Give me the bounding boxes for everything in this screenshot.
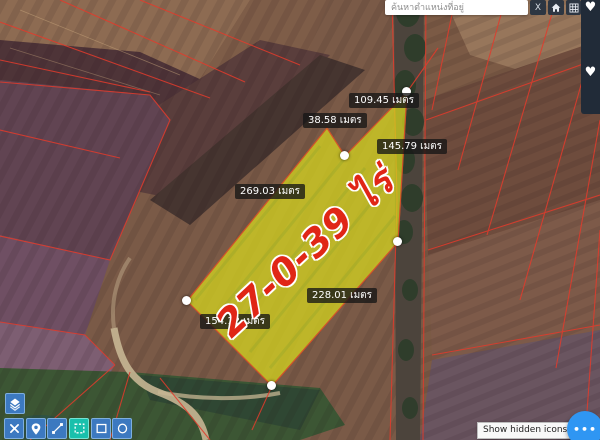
edge-length-label: 269.03 เมตร [235,184,305,199]
scissors-icon [8,422,21,435]
measure-distance-icon [51,422,64,435]
location-pin-icon [30,422,42,436]
layers-button[interactable] [5,393,25,414]
edge-length-label: 109.45 เมตร [349,93,419,108]
clear-search-button[interactable]: X [530,0,546,15]
vertex-marker[interactable] [393,237,402,246]
measure-distance-button[interactable] [47,418,67,439]
draw-polygon-icon [73,422,86,435]
show-hidden-icons-tooltip: Show hidden icons [477,422,573,439]
favorites-panel: ♥ ♥ [581,0,600,114]
map-application: 109.45 เมตร 38.58 เมตร 145.79 เมตร 269.0… [0,0,600,440]
draw-circle-button[interactable] [112,418,132,439]
draw-rectangle-button[interactable] [91,418,111,439]
draw-rectangle-icon [95,422,108,435]
grid-icon [569,3,579,13]
home-icon [551,3,561,13]
location-pin-button[interactable] [26,418,46,439]
vertex-marker[interactable] [340,151,349,160]
edge-length-label: 145.79 เมตร [377,139,447,154]
draw-circle-icon [116,422,129,435]
edge-length-label: 228.01 เมตร [307,288,377,303]
grid-view-button[interactable] [566,0,581,15]
vertex-marker[interactable] [182,296,191,305]
search-input[interactable] [385,0,528,15]
heart-icon[interactable]: ♥ [585,66,597,79]
home-button[interactable] [548,0,564,15]
cut-tool-button[interactable] [4,418,24,439]
layers-icon [8,397,22,411]
vertex-marker[interactable] [267,381,276,390]
draw-polygon-button[interactable] [69,418,89,439]
edge-length-label: 38.58 เมตร [303,113,367,128]
heart-icon[interactable]: ♥ [585,1,597,14]
more-options-button[interactable]: ••• [567,411,600,440]
